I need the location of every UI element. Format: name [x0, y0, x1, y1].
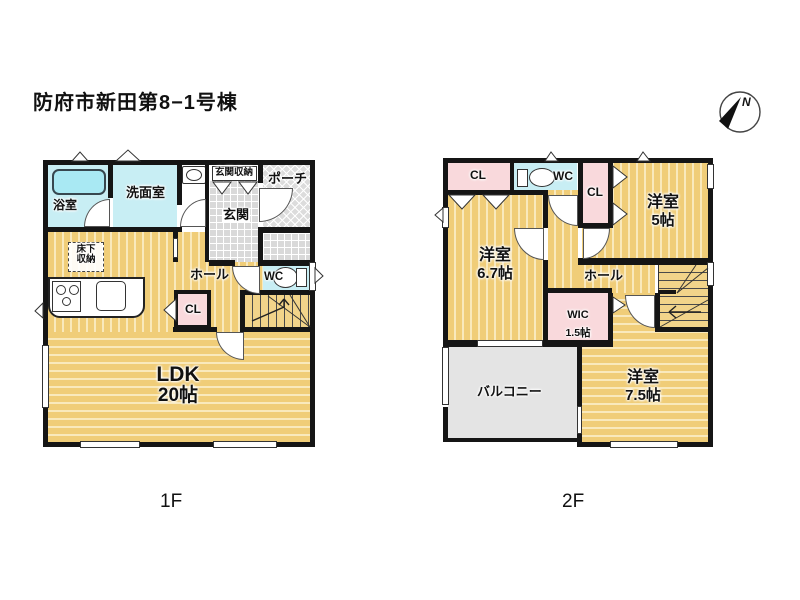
wall	[708, 158, 713, 447]
wall	[443, 407, 448, 440]
wall	[658, 290, 676, 294]
wall	[240, 290, 245, 332]
entrance-tile-strip	[263, 233, 310, 260]
room-label-entrance-storage: 玄関収納	[215, 168, 253, 178]
wall	[108, 165, 113, 198]
wall	[310, 160, 315, 447]
window	[610, 441, 678, 448]
window	[213, 441, 277, 448]
room-label-wc-2f: WC	[553, 170, 573, 183]
wall	[655, 327, 713, 332]
burner-icon	[56, 285, 66, 295]
floor-label-2f: 2F	[562, 492, 584, 513]
balcony-rail	[443, 438, 579, 442]
room-label-hall-2f: ホール	[584, 269, 623, 283]
room-label-closet-2f-right: CL	[587, 186, 603, 199]
wall	[173, 327, 217, 332]
wall	[608, 163, 613, 223]
room-label-bedroom-5: 洋室 5帖	[623, 194, 703, 229]
window	[42, 345, 49, 408]
wall	[443, 190, 548, 195]
kitchen-sink	[96, 281, 126, 311]
compass-icon: N	[719, 92, 760, 132]
sliding-door	[173, 238, 178, 258]
wall	[177, 165, 182, 205]
window	[80, 441, 140, 448]
window	[309, 262, 316, 291]
room-label-washroom: 洗面室	[126, 186, 165, 200]
wall	[258, 227, 310, 233]
room-label-closet-2f-left: CL	[470, 169, 486, 182]
wall	[578, 258, 713, 265]
room-label-bedroom-7-5: 洋室 7.5帖	[603, 369, 683, 404]
room-label-underfloor-storage: 床下 収納	[68, 245, 104, 266]
floor-label-1f: 1F	[160, 492, 182, 513]
burner-icon	[62, 297, 71, 306]
floor-plan-page: 防府市新田第8−1号棟 浴室 洗	[0, 0, 800, 600]
wall	[258, 165, 263, 183]
balcony-rail-window	[442, 347, 449, 405]
wall	[43, 227, 182, 232]
window	[577, 406, 582, 434]
wall	[578, 158, 583, 228]
window	[442, 207, 449, 228]
window	[707, 164, 714, 189]
room-label-bedroom-6-7: 洋室 6.7帖	[455, 247, 535, 282]
stairs-2f	[658, 265, 708, 327]
room-label-balcony: バルコニー	[477, 385, 542, 399]
room-label-hall-1f: ホール	[190, 268, 229, 282]
burner-icon	[69, 285, 79, 295]
room-label-ldk: LDK 20帖	[128, 363, 228, 407]
page-title: 防府市新田第8−1号棟	[33, 92, 238, 114]
compass-north-label: N	[742, 95, 751, 109]
stairs-1f	[245, 295, 310, 327]
wall	[510, 163, 514, 190]
room-label-wc-1f: WC	[264, 271, 283, 284]
wall	[608, 293, 613, 340]
toilet-bowl-2f	[529, 168, 555, 187]
room-label-bath: 浴室	[53, 199, 77, 212]
room-label-wic: WIC 1.5帖	[548, 305, 608, 340]
wall	[443, 158, 448, 347]
wall	[243, 327, 312, 332]
room-label-closet-1f: CL	[185, 303, 201, 316]
toilet-tank-2f	[517, 169, 528, 187]
wall	[258, 260, 312, 266]
toilet-tank-1f	[296, 268, 307, 287]
vent-triangle-icon	[315, 268, 323, 283]
window	[477, 340, 543, 347]
window	[707, 262, 714, 286]
wall	[543, 288, 612, 293]
vent-triangle-icon	[35, 303, 43, 318]
vanity-basin	[186, 169, 202, 181]
room-label-porch: ポーチ	[268, 172, 307, 186]
room-label-entrance: 玄関	[222, 208, 250, 222]
bathtub	[52, 169, 106, 195]
